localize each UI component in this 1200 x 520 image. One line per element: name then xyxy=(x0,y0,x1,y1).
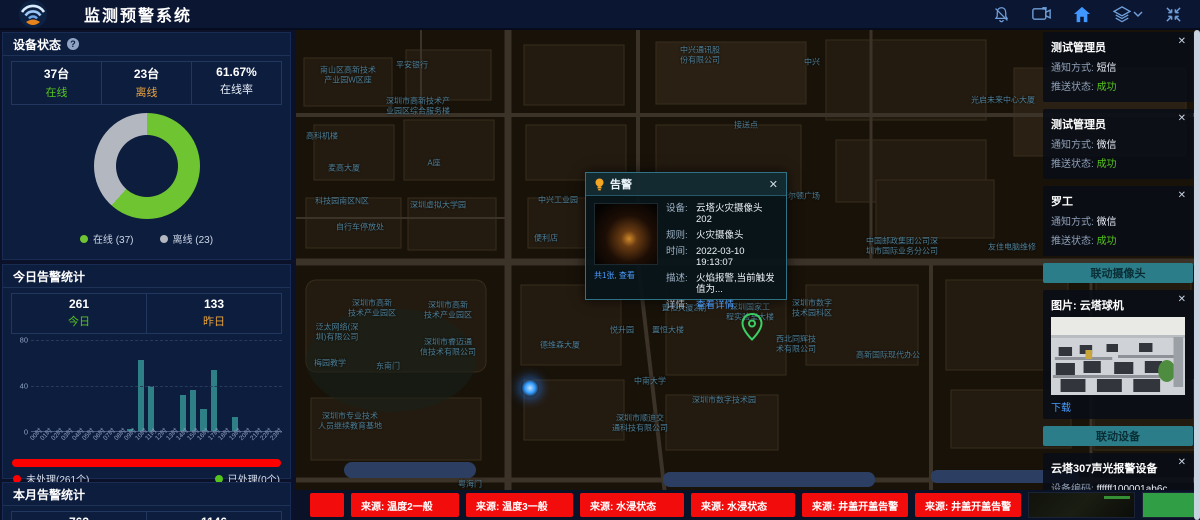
unhandled-progress-bar xyxy=(12,459,281,467)
snapshot-view-link[interactable]: 共1张, 查看 xyxy=(594,270,658,281)
online-legend-dot xyxy=(80,235,88,243)
alarm-field-label: 规则: xyxy=(666,230,696,241)
card-title: 测试管理员 xyxy=(1051,116,1185,132)
offline-legend-dot xyxy=(160,235,168,243)
app-header: 监测预警系统 xyxy=(0,0,1200,30)
alarm-field-row: 规则:火灾摄像头 xyxy=(666,230,778,241)
help-icon[interactable]: ? xyxy=(67,38,79,50)
alarm-field-row: 时间:2022-03-10 19:13:07 xyxy=(666,246,778,268)
today-alarm-title: 今日告警统计 xyxy=(13,268,85,285)
linked-device-card: ✕云塔307声光报警设备设备编码: ffffff100001ab6c调用服务: … xyxy=(1043,453,1193,490)
donut-legend: 在线 (37) 离线 (23) xyxy=(3,231,290,246)
yesterday-count: 133 xyxy=(147,297,281,311)
bar-chart-y-axis: 04080 xyxy=(11,340,31,432)
alarm-field-label: 描述: xyxy=(666,273,696,295)
today-count: 261 xyxy=(12,297,146,311)
today-alarm-stats: 261 今日 133 昨日 xyxy=(11,293,282,334)
device-status-stats: 37台 在线 23台 离线 61.67% 在线率 xyxy=(11,61,282,105)
offline-count: 23台 xyxy=(102,65,191,82)
alert-source-tile[interactable]: 来源: 水浸状态 xyxy=(580,493,684,517)
today-alarm-section: 今日告警统计 261 今日 133 昨日 04080 00时01时02时03时0… xyxy=(2,264,291,479)
layers-icon[interactable] xyxy=(1113,6,1131,23)
device-cards: ✕云塔307声光报警设备设备编码: ffffff100001ab6c调用服务: … xyxy=(1043,453,1193,490)
fire-alarm-snapshot[interactable] xyxy=(594,203,658,265)
yesterday-label: 昨日 xyxy=(147,313,281,329)
alarm-popup-title: 告警 xyxy=(610,176,632,192)
offline-legend-label: 离线 (23) xyxy=(173,231,214,246)
online-legend-label: 在线 (37) xyxy=(93,231,134,246)
card-row: 推送状态: 成功 xyxy=(1051,232,1185,247)
alarm-field-row: 设备:云塔火灾摄像头202 xyxy=(666,203,778,225)
app-logo-icon xyxy=(18,0,48,29)
alert-source-tile[interactable]: 来源: 温度2一般 xyxy=(351,493,459,517)
notification-card: ✕测试管理员通知方式: 微信推送状态: 成功 xyxy=(1043,109,1193,179)
today-bar-xlabels: 00时01时02时03时04时05时06时07时08时09时10时11时12时1… xyxy=(31,434,282,456)
map-blue-dot-marker[interactable] xyxy=(521,379,539,397)
card-row: 通知方式: 微信 xyxy=(1051,136,1185,151)
card-title: 云塔307声光报警设备 xyxy=(1051,460,1185,476)
x-tick-label: 23时 xyxy=(271,434,281,456)
close-icon[interactable]: ✕ xyxy=(1178,457,1186,468)
linked-devices-header[interactable]: 联动设备 xyxy=(1043,426,1193,446)
offline-label: 离线 xyxy=(102,84,191,100)
online-count: 37台 xyxy=(12,65,101,82)
close-icon[interactable]: ✕ xyxy=(1178,36,1186,47)
alert-source-tile[interactable]: 来源: 井盖开盖告警 xyxy=(802,493,908,517)
month-alarm-stats: 763 1146 xyxy=(11,511,282,520)
card-row: 通知方式: 微信 xyxy=(1051,213,1185,228)
alarm-field-label: 设备: xyxy=(666,203,696,225)
close-icon[interactable]: ✕ xyxy=(1178,190,1186,201)
month-alarm-section: 本月告警统计 763 1146 xyxy=(2,482,291,520)
device-status-donut-chart xyxy=(94,113,200,219)
bell-mute-icon[interactable] xyxy=(993,6,1010,23)
online-rate: 61.67% xyxy=(192,65,281,79)
online-label: 在线 xyxy=(12,84,101,100)
alarm-bulb-icon xyxy=(594,178,605,191)
month-alarm-title: 本月告警统计 xyxy=(13,486,85,503)
alert-source-tile[interactable] xyxy=(310,493,344,517)
alarm-popup-close-icon[interactable]: ✕ xyxy=(769,178,778,191)
close-icon[interactable]: ✕ xyxy=(1178,294,1186,305)
green-frame-thumbnail[interactable] xyxy=(1142,492,1200,518)
today-bar-plot xyxy=(31,340,282,432)
alert-source-tile[interactable]: 来源: 井盖开盖告警 xyxy=(915,493,1021,517)
card-row: 推送状态: 成功 xyxy=(1051,155,1185,170)
view-details-link[interactable]: 查看详情 xyxy=(696,300,734,311)
home-icon[interactable] xyxy=(1073,6,1091,23)
bottom-alert-ticker: 来源: 温度2一般来源: 温度3一般来源: 水浸状态来源: 水浸状态来源: 井盖… xyxy=(296,490,1200,520)
right-notification-panel: ✕测试管理员通知方式: 短信推送状态: 成功✕测试管理员通知方式: 微信推送状态… xyxy=(1043,32,1193,490)
alarm-field-value: 火灾摄像头 xyxy=(696,230,744,241)
alert-tiles: 来源: 温度2一般来源: 温度3一般来源: 水浸状态来源: 水浸状态来源: 井盖… xyxy=(310,493,1021,517)
download-link[interactable]: 下载 xyxy=(1051,399,1185,414)
notification-card: ✕测试管理员通知方式: 短信推送状态: 成功 xyxy=(1043,32,1193,102)
month-value-1: 763 xyxy=(12,515,146,520)
card-title: 罗工 xyxy=(1051,193,1185,209)
alarm-field-value: 云塔火灾摄像头202 xyxy=(696,203,778,225)
chevron-down-icon[interactable] xyxy=(1133,10,1143,18)
close-icon[interactable]: ✕ xyxy=(1178,113,1186,124)
alert-source-tile[interactable]: 来源: 水浸状态 xyxy=(691,493,795,517)
camera-snapshot-card: ✕ 图片: 云塔球机 下载 xyxy=(1043,290,1193,419)
card-title: 测试管理员 xyxy=(1051,39,1185,55)
alert-source-tile[interactable]: 来源: 温度3一般 xyxy=(466,493,573,517)
online-rate-label: 在线率 xyxy=(192,81,281,97)
fullscreen-icon[interactable] xyxy=(1165,6,1182,23)
month-value-2: 1146 xyxy=(147,515,281,520)
camera-card-title: 图片: 云塔球机 xyxy=(1051,297,1185,313)
vertical-scrollbar[interactable] xyxy=(1194,30,1200,520)
alarm-popup-fields: 设备:云塔火灾摄像头202规则:火灾摄像头时间:2022-03-10 19:13… xyxy=(666,203,778,316)
alarm-field-row: 描述:火焰报警,当前触发值为... xyxy=(666,273,778,295)
alarm-field-row: 详情:查看详情 xyxy=(666,300,778,311)
today-label: 今日 xyxy=(12,313,146,329)
office-cctv-snapshot[interactable] xyxy=(1051,317,1185,395)
video-frame-thumbnail[interactable] xyxy=(1028,492,1135,518)
card-row: 推送状态: 成功 xyxy=(1051,78,1185,93)
alarm-popup: 告警 ✕ 共1张, 查看 设备:云塔火灾摄像头202规则:火灾摄像头时间:202… xyxy=(585,172,787,300)
page-title: 监测预警系统 xyxy=(84,2,192,26)
video-camera-icon[interactable] xyxy=(1032,6,1051,22)
device-status-title: 设备状态 xyxy=(13,36,61,53)
left-stats-panel: 设备状态 ? 37台 在线 23台 离线 61.67% 在线率 在线 (37) … xyxy=(0,30,296,520)
alarm-field-value: 2022-03-10 19:13:07 xyxy=(696,246,778,268)
card-row: 通知方式: 短信 xyxy=(1051,59,1185,74)
alarm-field-label: 详情: xyxy=(666,300,696,311)
device-status-section: 设备状态 ? 37台 在线 23台 离线 61.67% 在线率 在线 (37) … xyxy=(2,32,291,260)
linked-cameras-header[interactable]: 联动摄像头 xyxy=(1043,263,1193,283)
today-alarm-bar-chart: 04080 xyxy=(11,340,282,432)
alarm-field-label: 时间: xyxy=(666,246,696,268)
notification-card: ✕罗工通知方式: 微信推送状态: 成功 xyxy=(1043,186,1193,256)
notification-cards: ✕测试管理员通知方式: 短信推送状态: 成功✕测试管理员通知方式: 微信推送状态… xyxy=(1043,32,1193,256)
card-row: 设备编码: ffffff100001ab6c xyxy=(1051,480,1185,490)
alarm-field-value: 火焰报警,当前触发值为... xyxy=(696,273,778,295)
